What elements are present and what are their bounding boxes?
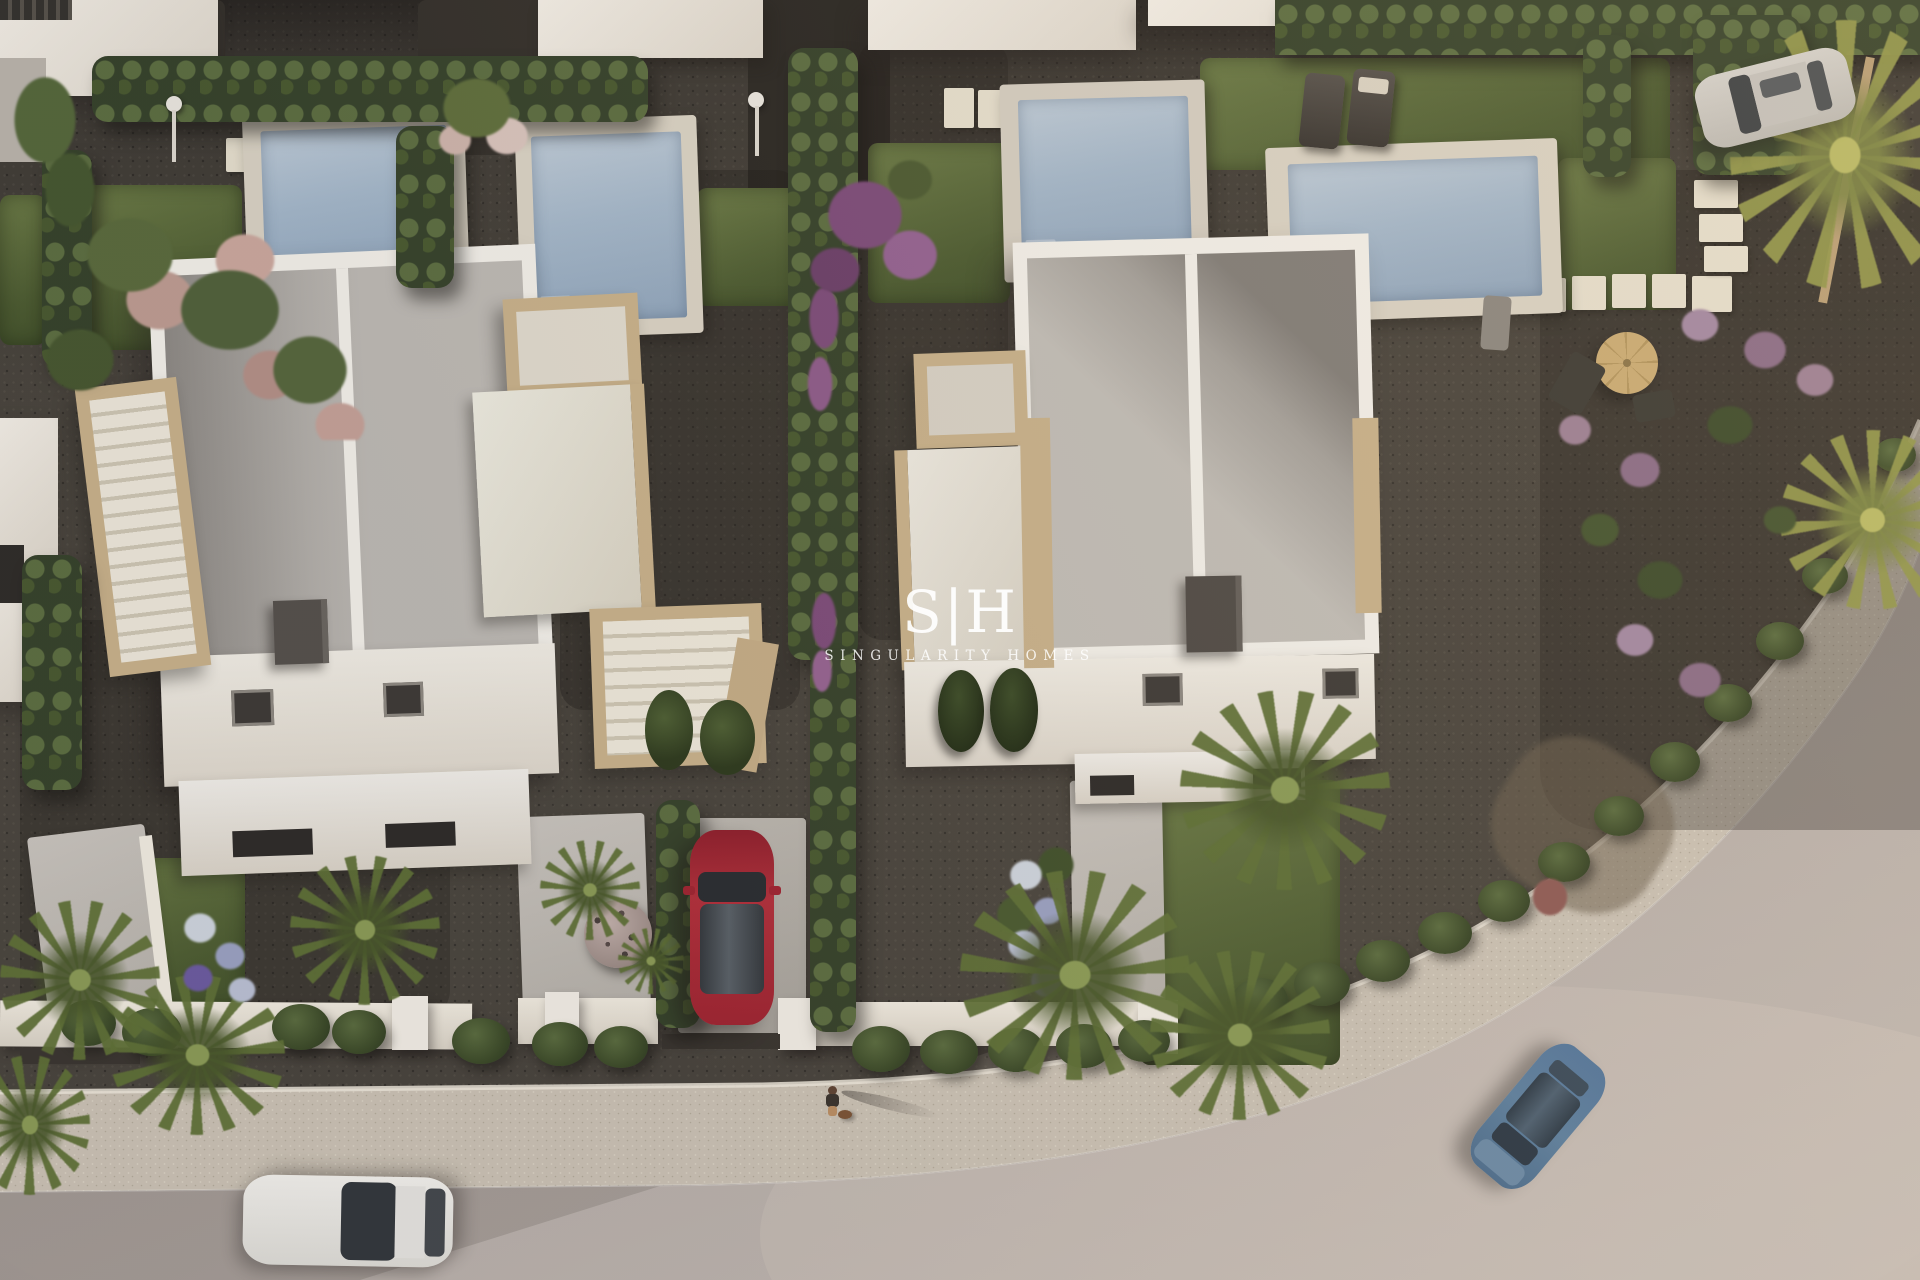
hydrangea-bed (162, 898, 272, 1013)
wall-pillar (392, 996, 428, 1050)
car-mirror (683, 886, 695, 895)
car-rear-window (424, 1188, 445, 1256)
skylight (383, 682, 424, 717)
hedge-mound (920, 1030, 978, 1074)
villa-left-upper-terrace (502, 293, 642, 400)
sun-lounger (1298, 72, 1346, 150)
neighbor-building (538, 0, 763, 58)
hedge-mound (594, 1026, 648, 1068)
red-car (690, 830, 774, 1025)
parasol-center (1623, 359, 1631, 367)
cypress-shrub (938, 670, 984, 752)
car-roof (394, 1186, 425, 1259)
hedge-vertical (1583, 35, 1631, 177)
curve-hedge (1418, 912, 1472, 954)
neighbor-building (868, 0, 1136, 50)
outdoor-shower-pole (172, 110, 176, 162)
parasol (1596, 332, 1658, 394)
courtyard-shrub (700, 700, 755, 775)
pedestrian (824, 1086, 840, 1116)
towel (1358, 77, 1389, 95)
palm-tree (1150, 950, 1330, 1120)
yucca-plant (540, 840, 640, 940)
stepping-stone (1694, 180, 1738, 208)
car-windshield (340, 1182, 397, 1261)
pool-chair (1480, 295, 1512, 351)
hedge-mound (452, 1018, 510, 1064)
hedge-mound (532, 1022, 588, 1066)
blossom-tree-small (415, 48, 555, 183)
palm-tree (290, 855, 440, 1005)
car-mirror (769, 886, 781, 895)
pergola (0, 0, 72, 20)
window-opening (385, 822, 456, 848)
stepping-stone (1699, 214, 1743, 242)
purple-bougainvillea-tree (790, 135, 960, 315)
car-glass-roof (700, 904, 764, 994)
white-car (242, 1174, 454, 1268)
car-windshield (698, 872, 766, 902)
villa-left-landing (472, 384, 656, 618)
hedge-driveway-right (810, 650, 856, 1032)
terrace-floor (516, 306, 629, 386)
palm-tree (1180, 690, 1390, 890)
yucca-plant (618, 928, 684, 994)
red-flower-shrub (1520, 865, 1580, 930)
stepping-stone (944, 88, 974, 128)
hedge-mound (332, 1010, 386, 1054)
outdoor-shower-pole (755, 106, 759, 156)
window-opening (232, 828, 313, 857)
villa-right-chimney (1185, 576, 1242, 653)
mauve-shrub-cluster (1540, 280, 1900, 760)
neighbor-window (0, 545, 24, 603)
watermark: S|H SINGULARITY HOMES (760, 583, 1160, 664)
stepping-stone (1704, 246, 1748, 272)
curve-hedge (1356, 940, 1410, 982)
cypress-shrub (990, 668, 1038, 752)
hedge-mound (852, 1026, 910, 1072)
skylight (231, 689, 274, 726)
aerial-render-scene: S|H SINGULARITY HOMES (0, 0, 1920, 1280)
skylight (1142, 673, 1183, 706)
banana-plant (0, 40, 120, 240)
courtyard-shrub (645, 690, 693, 770)
watermark-logo: S|H (760, 583, 1160, 641)
window-opening (1090, 775, 1134, 796)
skylight (1322, 668, 1359, 699)
villa-left-lower-roof (160, 643, 559, 787)
sun-lounger (1346, 68, 1396, 148)
stone-side-wall (1352, 418, 1381, 613)
villa-left-chimney (273, 599, 329, 665)
terrace-floor (927, 364, 1015, 436)
hedge-left-edge (22, 555, 82, 790)
small-dog (838, 1110, 852, 1119)
curve-hedge (1594, 796, 1644, 836)
pedestrian-legs (828, 1106, 837, 1116)
driveway-gate (662, 1034, 780, 1049)
watermark-wordmark: SINGULARITY HOMES (760, 648, 1160, 664)
sunroof (1759, 72, 1802, 99)
villa-right-upper-terrace (913, 350, 1028, 449)
